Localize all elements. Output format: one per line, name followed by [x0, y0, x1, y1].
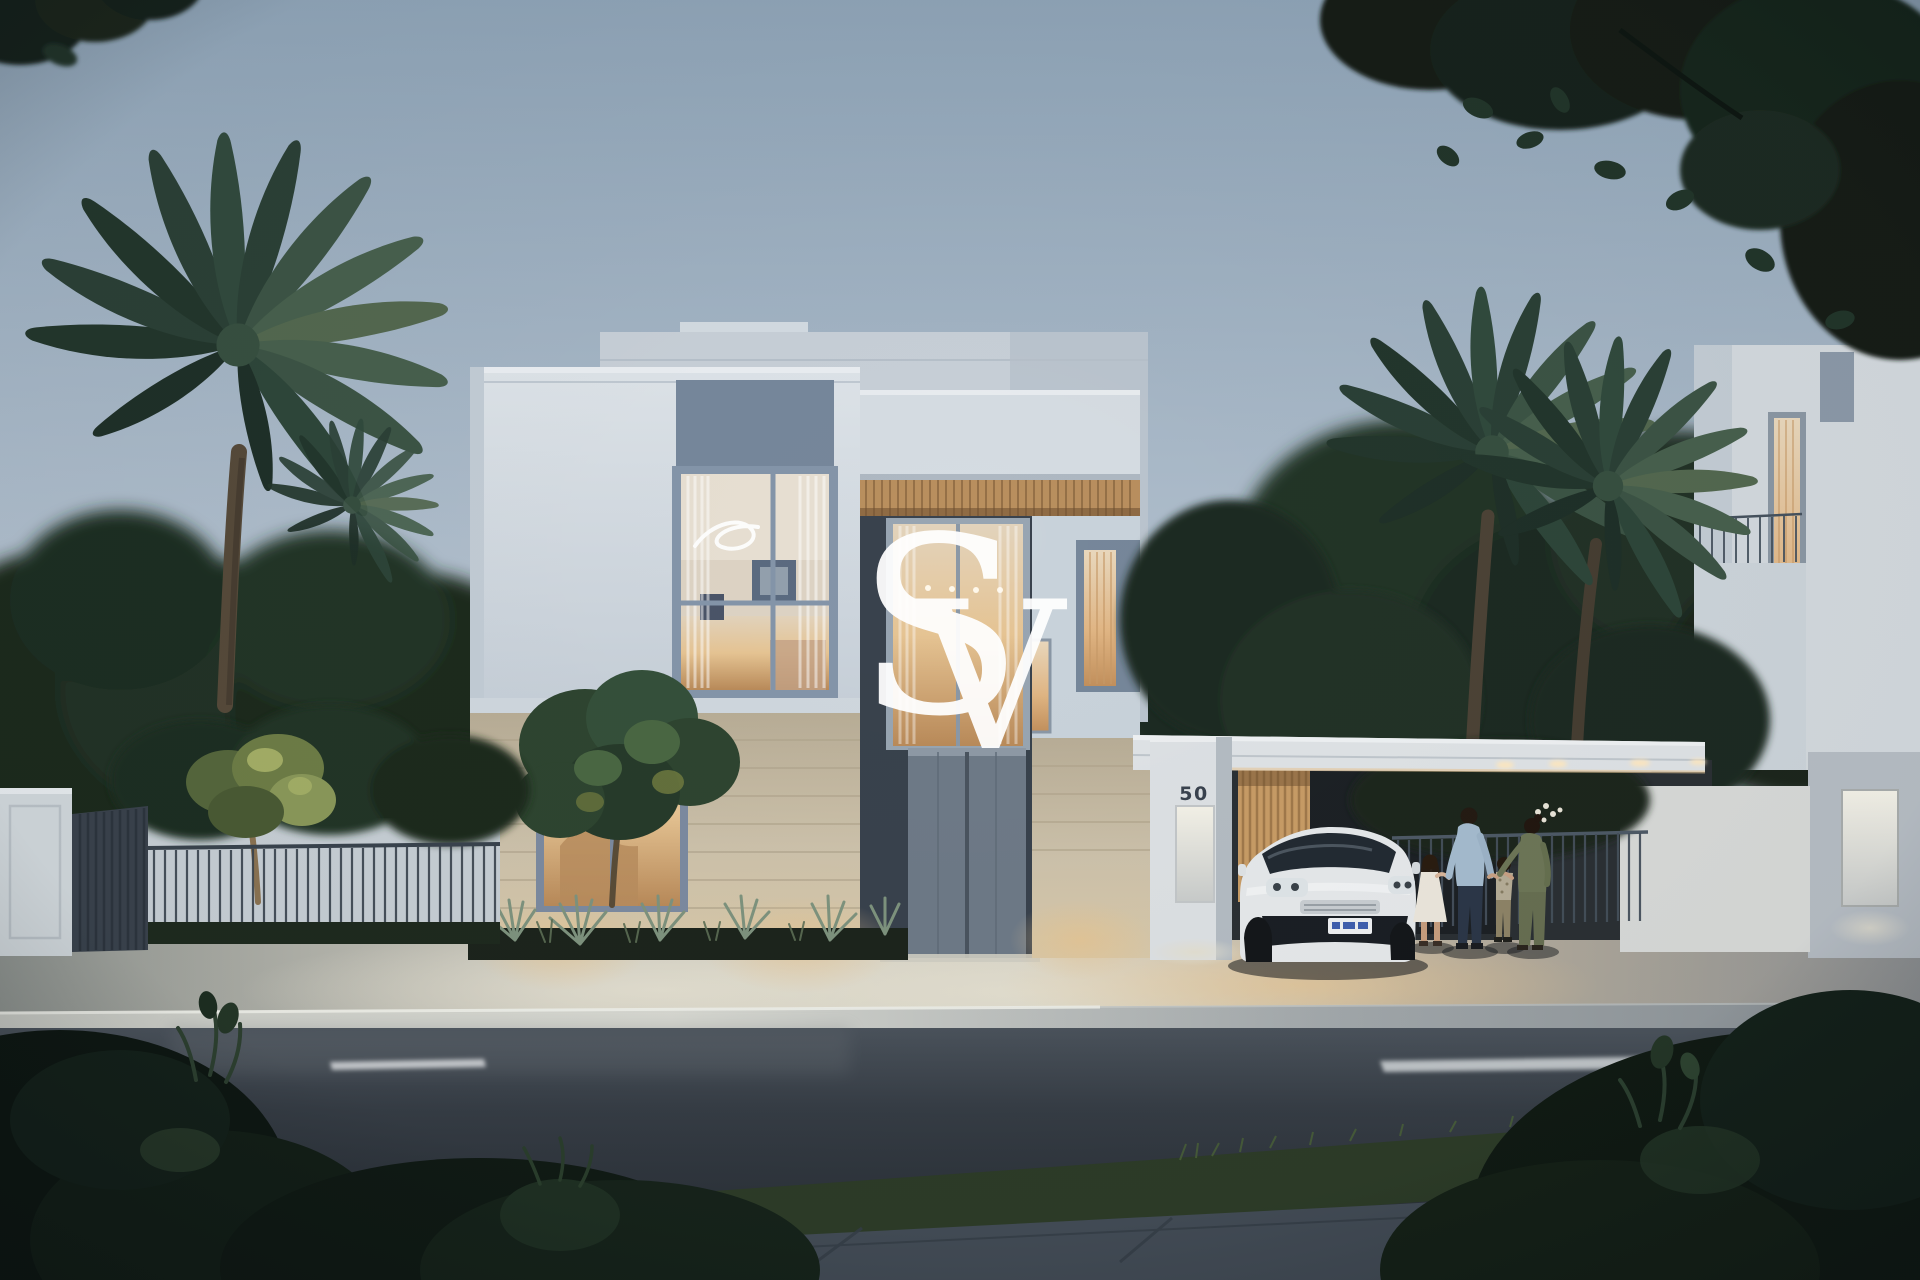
- watermark-letter-v: V: [914, 559, 1068, 797]
- scene-canvas: 50: [0, 0, 1920, 1280]
- villa-render-photo: 50: [0, 0, 1920, 1280]
